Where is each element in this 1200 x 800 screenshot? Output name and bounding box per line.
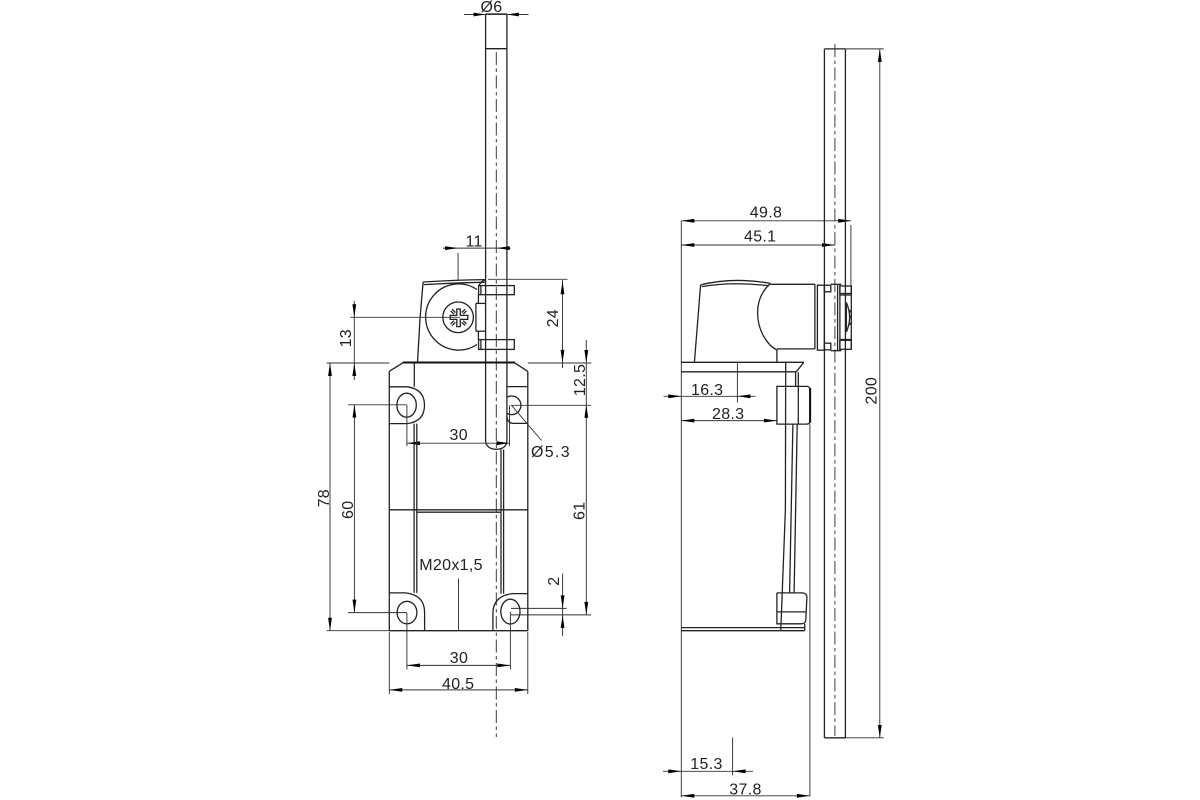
svg-text:45.1: 45.1 [744, 229, 776, 246]
svg-text:40.5: 40.5 [442, 676, 474, 693]
svg-text:16.3: 16.3 [691, 382, 723, 399]
svg-text:61: 61 [572, 502, 589, 520]
svg-text:Ø6: Ø6 [481, 0, 503, 16]
svg-text:24: 24 [545, 309, 562, 327]
svg-text:Ø5.3: Ø5.3 [531, 444, 571, 461]
svg-text:2: 2 [546, 577, 563, 586]
svg-text:11: 11 [466, 234, 483, 251]
svg-text:78: 78 [316, 489, 333, 507]
svg-text:15.3: 15.3 [690, 756, 722, 773]
svg-text:M20x1,5: M20x1,5 [419, 557, 482, 574]
svg-text:28.3: 28.3 [712, 406, 744, 423]
svg-text:200: 200 [864, 377, 881, 405]
svg-text:13: 13 [338, 329, 355, 347]
svg-text:30: 30 [450, 650, 468, 667]
svg-text:37.8: 37.8 [729, 781, 761, 798]
svg-text:49.8: 49.8 [750, 205, 782, 222]
svg-text:30: 30 [450, 427, 468, 444]
svg-text:60: 60 [340, 501, 357, 519]
svg-text:12.5: 12.5 [572, 364, 589, 396]
